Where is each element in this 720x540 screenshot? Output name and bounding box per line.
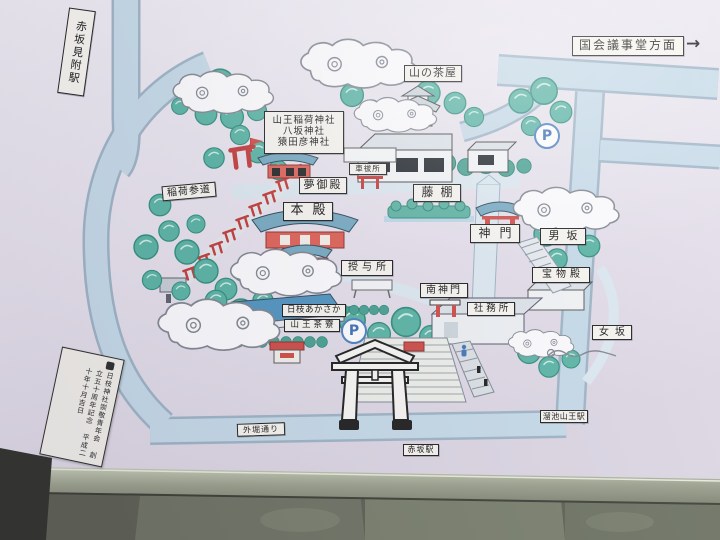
direction-arrow-icon: → (686, 34, 700, 54)
rock-shadow (0, 448, 52, 540)
label-hie-akasaka: 日枝あかさか (282, 304, 346, 317)
signboard-photo: 赤坂見附駅 国会議事堂方面 → 山の茶屋 山王稲荷神社 八坂神社 猿田彦神社 夢… (0, 0, 720, 540)
parking-icon-north: P (534, 123, 560, 149)
label-yama-no-chaya: 山の茶屋 (404, 65, 462, 82)
label-honden: 本殿 (283, 202, 333, 221)
label-tameike-sanno-station: 溜池山王駅 (540, 410, 588, 423)
red-kiosk (270, 342, 304, 363)
label-kuruma-haraisho: 車祓所 (349, 163, 387, 175)
label-kokkai-gijido-homen: 国会議事堂方面 (572, 36, 684, 56)
label-three-shrines: 山王稲荷神社 八坂神社 猿田彦神社 (264, 111, 344, 154)
parking-icon-south: P (341, 318, 367, 344)
label-onnazaka: 女坂 (592, 325, 632, 340)
person-icon (462, 345, 467, 357)
label-shinmon: 神門 (470, 224, 520, 243)
label-fujidana: 藤棚 (413, 184, 461, 202)
memorial-text: 日枝神社崇敬青年会 創立五十周年記念 平成二十年十月吉日 (46, 362, 116, 461)
label-otokozaka: 男坂 (540, 228, 586, 245)
label-akasaka-station: 赤坂駅 (403, 444, 439, 456)
fujidana-trellis (384, 199, 474, 222)
label-shamusho: 社務所 (467, 302, 515, 316)
label-sanno-saryo: 山王茶寮 (284, 319, 340, 332)
label-juyosho: 授与所 (341, 260, 393, 276)
shrine-crest-icon (105, 361, 114, 370)
label-sarutahiko-jinja: 猿田彦神社 (278, 138, 331, 149)
label-homotsuden: 宝物殿 (532, 267, 590, 283)
label-sotobori-dori: 外堀通り (237, 422, 285, 437)
label-minami-shinmon: 南神門 (420, 283, 468, 298)
label-yume-goten: 夢御殿 (299, 177, 347, 194)
